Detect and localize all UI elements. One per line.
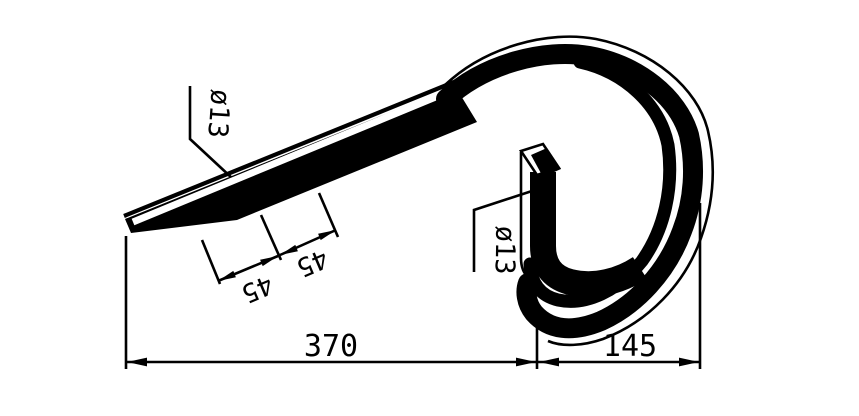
arrowhead-145-right — [679, 358, 699, 367]
arrowhead-370-left — [127, 358, 147, 367]
shank-highlight-gap — [133, 89, 455, 222]
spring-tine-part — [124, 37, 713, 345]
dimension-label-shank-diameter: ø13 — [201, 88, 235, 139]
dimension-label-spacing-first: 45 — [237, 268, 278, 308]
extension-tick-2 — [261, 215, 281, 260]
drawing-sheet: 370 145 45 45 ø13 ø13 — [0, 0, 859, 416]
arrowhead-45a-right — [260, 256, 278, 266]
arrowhead-370-right — [516, 358, 536, 367]
technical-drawing-canvas: 370 145 45 45 ø13 ø13 — [0, 0, 859, 416]
extension-tick-1 — [202, 240, 220, 284]
arrowhead-45a-left — [218, 271, 236, 281]
dimension-label-overall-length: 370 — [304, 329, 358, 364]
arrowhead-145-left — [539, 358, 559, 367]
tine-leg-body — [543, 172, 640, 284]
dimension-label-leg-diameter: ø13 — [489, 225, 521, 274]
dimension-label-coil-width: 145 — [603, 329, 657, 364]
arrowhead-45b-right — [318, 230, 336, 240]
tine-shank-body — [125, 86, 477, 233]
